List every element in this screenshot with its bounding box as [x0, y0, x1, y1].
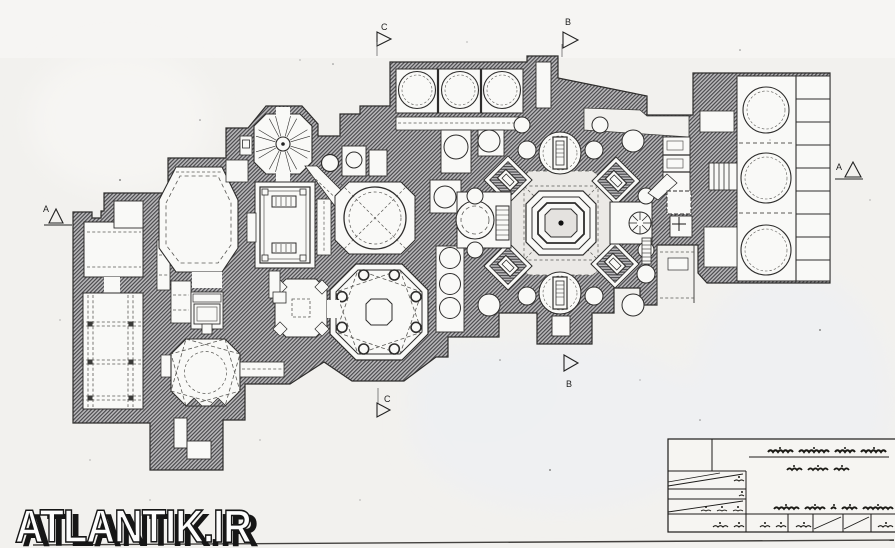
svg-text:C: C — [381, 22, 388, 32]
svg-text:B: B — [565, 17, 571, 27]
svg-text:A: A — [836, 162, 842, 172]
svg-text:B: B — [566, 379, 572, 389]
svg-text:ATLANTIK.IR: ATLANTIK.IR — [15, 500, 252, 548]
svg-text:A: A — [43, 204, 49, 214]
svg-text:C: C — [384, 394, 391, 404]
